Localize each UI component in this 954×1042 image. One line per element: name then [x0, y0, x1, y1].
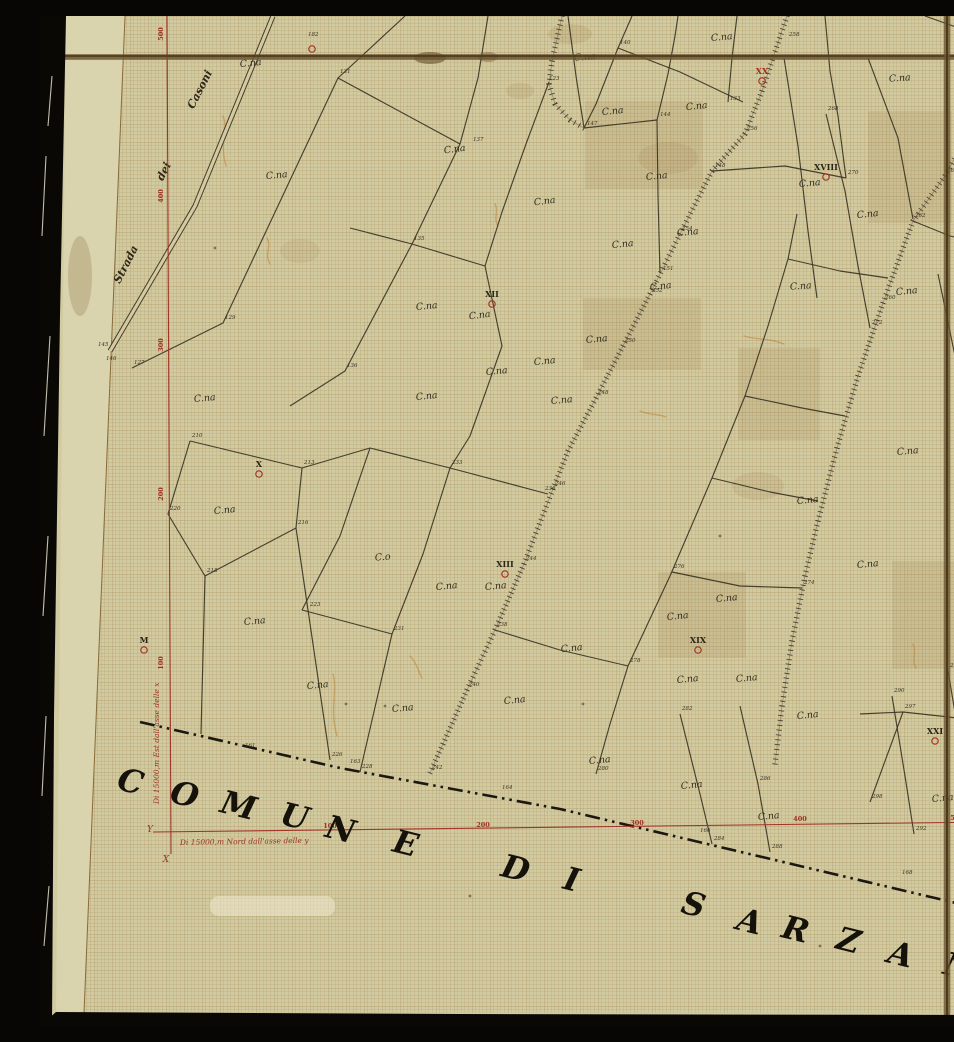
farmstead-label: C.na — [710, 31, 733, 44]
stain — [68, 236, 92, 316]
vertex-number: 131 — [340, 69, 351, 75]
stain — [280, 239, 320, 263]
farmstead-label: C.na — [391, 702, 414, 715]
stain — [638, 142, 698, 174]
stain — [732, 472, 784, 500]
station-numeral: XVIII — [814, 162, 838, 172]
station-numeral: XIX — [690, 635, 707, 645]
red-axis-tick-label: 200 — [476, 821, 490, 829]
horizontal-fold — [52, 54, 954, 60]
vertex-number: 280 — [597, 766, 609, 772]
farmstead-label: C.na — [243, 615, 266, 628]
vertex-number: 282 — [681, 706, 693, 712]
farmstead-label: C.na — [193, 392, 216, 405]
farmstead-label: C.o — [374, 551, 391, 563]
origin-offset-note: Di 15000,m Est dall'asse delle x — [152, 682, 161, 805]
vertex-number: 129 — [225, 315, 236, 321]
red-axis-tick-label: 300 — [630, 819, 644, 827]
station-numeral: XIII — [496, 559, 514, 569]
farmstead-label: C.na — [503, 694, 526, 707]
farmstead-label: C.na — [601, 105, 624, 118]
vertex-number: 147 — [587, 121, 598, 127]
vertex-number: 270 — [847, 170, 859, 176]
vertex-number: 292 — [915, 826, 927, 832]
cadastral-map-sheet: COMUNE DI SARZAN CasonideiStrada16116316… — [40, 16, 954, 1026]
vertex-number: 123 — [549, 76, 560, 82]
vertex-number: 148 — [715, 163, 726, 169]
farmstead-label: C.na — [715, 592, 738, 605]
boundary-point-number: 168 — [902, 870, 913, 876]
vertex-number: 136 — [347, 363, 358, 369]
red-axis-tick-label: 400 — [157, 189, 165, 203]
vertex-number: 272 — [871, 320, 883, 326]
vertex-number: 223 — [309, 602, 321, 608]
vertex-number: 260 — [884, 295, 896, 301]
farmstead-label: C.na — [676, 673, 699, 686]
vertex-number: 216 — [297, 520, 309, 526]
farmstead-label: C.na — [306, 679, 329, 692]
farmstead-label: C.na — [533, 355, 556, 368]
farmstead-label: C.na — [560, 642, 583, 655]
vertex-number: 231 — [393, 626, 405, 632]
farmstead-label: C.na — [265, 169, 288, 182]
stain — [506, 83, 534, 99]
red-axis-tick-label: 300 — [157, 338, 165, 352]
farmstead-label: C.na — [213, 504, 236, 517]
farmstead-label: C.na — [856, 208, 879, 221]
boundary-point-number: 163 — [350, 759, 361, 765]
farmstead-label: C.na — [585, 333, 608, 346]
red-axis-tick-label: 200 — [157, 487, 165, 501]
farmstead-label: C.na — [649, 280, 672, 293]
vertex-number: 286 — [759, 776, 771, 782]
axis-letter: Y — [147, 825, 154, 835]
farmstead-label: C.na — [796, 494, 819, 507]
farmstead-label: C.na — [680, 779, 703, 792]
station-numeral: M — [140, 635, 149, 645]
red-axis-tick-label: 100 — [157, 656, 165, 670]
farmstead-label: C.na — [790, 280, 813, 293]
vertex-number: 240 — [468, 682, 480, 688]
farmstead-label: C.na — [611, 238, 634, 251]
boundary-point-number: 166 — [700, 828, 711, 834]
station-numeral: X — [256, 459, 263, 469]
farmstead-label: C.na — [735, 672, 758, 685]
vertex-number: 182 — [308, 32, 319, 38]
vertex-number: 246 — [554, 481, 566, 487]
red-axis-tick-label: 400 — [793, 815, 807, 823]
vertex-number: 218 — [206, 568, 218, 574]
farmstead-label: C.na — [676, 226, 699, 239]
red-axis-tick-label: 500 — [157, 27, 165, 41]
vertex-number: 133 — [730, 96, 741, 102]
vertex-number: 262 — [914, 213, 926, 219]
vertex-number: 297 — [904, 704, 916, 710]
farmstead-label: C.na — [415, 390, 438, 403]
vertex-number: 242 — [431, 765, 443, 771]
vertex-number: 274 — [803, 580, 815, 586]
farmstead-label: C.na — [889, 72, 912, 85]
farmstead-label: C.na — [645, 170, 668, 183]
dense-grid-patch — [868, 111, 952, 223]
farmstead-label: C.na — [798, 177, 821, 190]
farmstead-label: C.na — [415, 300, 438, 313]
vertex-number: 268 — [827, 106, 839, 112]
farmstead-label: C.na — [931, 792, 954, 805]
farmstead-label: C.na — [895, 285, 918, 298]
vertex-number: 244 — [525, 556, 537, 562]
vertex-number: 145 — [98, 342, 109, 348]
vertex-number: 248 — [597, 390, 609, 396]
vertex-number: 137 — [473, 137, 484, 143]
farmstead-label: C.na — [856, 558, 879, 571]
farmstead-label: C.na — [550, 394, 573, 407]
vertex-number: 210 — [191, 433, 203, 439]
farmstead-label: C.na — [896, 445, 919, 458]
map-canvas: CasonideiStrada1611631641661685004003002… — [40, 16, 954, 1026]
vertex-number: 213 — [303, 460, 315, 466]
vertex-number: 226 — [331, 752, 343, 758]
farmstead-label: C.na — [796, 709, 819, 722]
axis-letter: X — [162, 855, 170, 865]
vertex-number: 220 — [169, 506, 181, 512]
vertex-number: 238 — [496, 622, 508, 628]
vertex-number: 151 — [663, 266, 674, 272]
farmstead-label: C.na — [485, 365, 508, 378]
vertex-number: 127 — [134, 360, 145, 366]
vertex-number: 276 — [673, 564, 685, 570]
vertex-number: 146 — [106, 356, 117, 362]
boundary-point-number: 161 — [245, 743, 256, 749]
farmstead-label: C.na — [757, 810, 780, 823]
vertex-number: 140 — [620, 40, 631, 46]
farmstead-label: C.na — [484, 580, 507, 593]
dense-grid-patch — [738, 348, 820, 440]
vertex-number: 256 — [746, 126, 758, 132]
farmstead-label: C.na — [666, 610, 689, 623]
station-numeral: XXI — [927, 726, 943, 736]
vertex-number: 258 — [788, 32, 800, 38]
vertex-number: 284 — [713, 836, 725, 842]
vertex-number: 228 — [361, 764, 373, 770]
farmstead-label: C.na — [435, 580, 458, 593]
vertex-number: 278 — [629, 658, 641, 664]
red-axis-tick-label: 500 — [950, 814, 954, 822]
station-numeral: XII — [485, 289, 499, 299]
vertex-number: 233 — [451, 460, 463, 466]
bleached-streak — [210, 896, 335, 916]
vertex-number: 288 — [771, 844, 783, 850]
vertex-number: 250 — [624, 338, 636, 344]
station-numeral: XX — [756, 66, 769, 76]
vertex-number: 135 — [414, 236, 425, 242]
vertex-number: 298 — [871, 794, 883, 800]
vertex-number: 144 — [660, 112, 671, 118]
farmstead-label: C.na — [588, 754, 611, 767]
farmstead-label: C.na — [685, 100, 708, 113]
vertex-number: 290 — [893, 688, 905, 694]
boundary-point-number: 164 — [502, 785, 513, 791]
